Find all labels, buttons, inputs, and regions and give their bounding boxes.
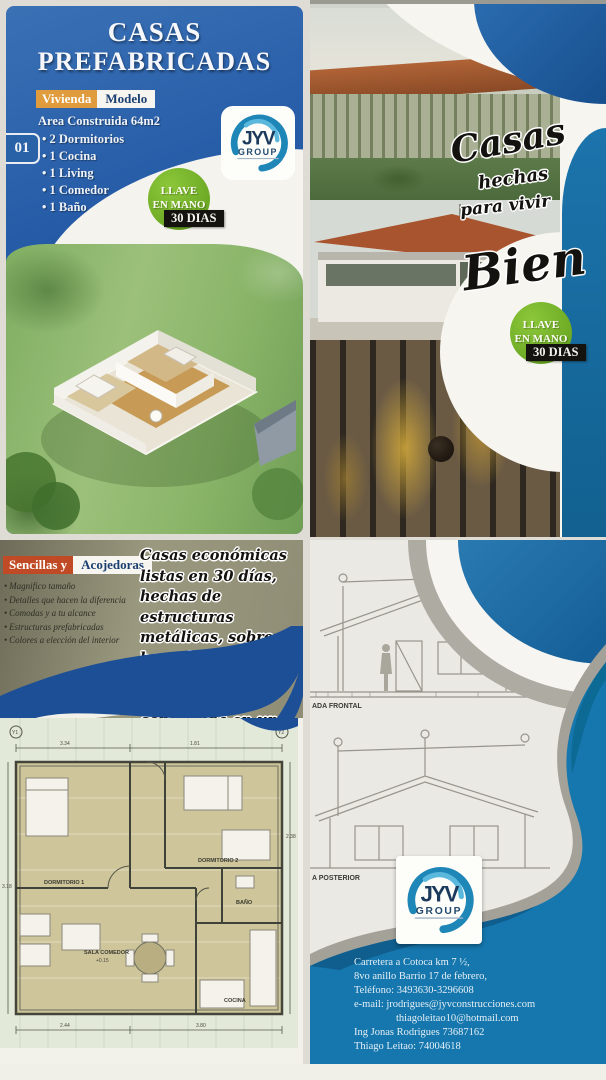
room-label-dorm2: DORMITORIO 2 (198, 858, 238, 864)
room-label-dorm1: DORMITORIO 1 (44, 880, 84, 886)
panel-floorplan: Sencillas y Acojedoras Magnifico tamaño … (0, 540, 303, 1080)
title-line-1: CASAS (6, 18, 303, 48)
feature-item: 1 Living (42, 166, 124, 181)
contact-line-email1: e-mail: jrodrigues@jyvconstrucciones.com (354, 998, 592, 1012)
panel-elevations-contact: ADA FRONTAL A POSTERIOR (310, 540, 606, 1080)
contact-line-person2: Thiago Leitao: 74004618 (354, 1040, 592, 1054)
brochure-scan: CASAS PREFABRICADAS Vivienda Modelo Area… (0, 0, 606, 1080)
llave-en-mano-badge: LLAVE EN MANO 30 DIAS (148, 168, 210, 230)
house-3d-render (6, 244, 303, 534)
llave-line1: LLAVE (148, 185, 210, 199)
contact-line-address2: 8vo anillo Barrio 17 de febrero, (354, 970, 592, 984)
llave-en-mano-badge: LLAVE EN MANO 30 DIAS (510, 302, 572, 364)
dim-left1: 3.18 (2, 884, 12, 890)
dias-bar: 30 DIAS (526, 344, 586, 361)
jyv-logo-swirl-icon: JYV GROUP (221, 106, 295, 180)
jyv-logo-swirl-icon: JYV GROUP (396, 856, 482, 944)
dias-bar: 30 DIAS (164, 210, 224, 227)
dim-bottom2: 3.80 (196, 1023, 206, 1029)
jyv-group-logo: JYV GROUP (221, 106, 295, 180)
feature-list: 2 Dormitorios 1 Cocina 1 Living 1 Comedo… (42, 130, 124, 217)
tag-modelo: Modelo (97, 90, 155, 108)
unit-number-badge: 01 (6, 133, 40, 164)
scan-edge (0, 1064, 606, 1080)
contact-block: Carretera a Cotoca km 7 ½, 8vo anillo Ba… (354, 956, 592, 1054)
dim-top2: 1.81 (190, 741, 200, 747)
feature-item: 1 Cocina (42, 149, 124, 164)
jyv-group-logo: JYV GROUP (396, 856, 482, 944)
room-label-cocina: COCINA (224, 998, 246, 1004)
contact-line-phone: Teléfono: 3493630-3296608 (354, 984, 592, 998)
benefit-item: Detalles que hacen la diferencia (4, 594, 126, 608)
tag-sencillas: Sencillas y (3, 556, 73, 574)
landscape-render (6, 244, 303, 534)
contact-line-address1: Carretera a Cotoca km 7 ½, (354, 956, 592, 970)
logo-group-text: GROUP (416, 906, 462, 917)
title-line-2: PREFABRICADAS (6, 48, 303, 77)
feature-item: 2 Dormitorios (42, 132, 124, 147)
logo-jyv-text: JYV (420, 882, 459, 907)
axis-marker-2: Y2 (278, 730, 284, 736)
logo-group-text: GROUP (238, 147, 278, 157)
model-tag: Vivienda Modelo (36, 90, 155, 108)
benefit-item: Comodas y a tu alcance (4, 607, 126, 621)
llave-line1: LLAVE (510, 319, 572, 333)
room-label-bano: BAÑO (236, 899, 253, 906)
feature-item: 1 Comedor (42, 183, 124, 198)
level-mark: +0.15 (96, 958, 109, 964)
feature-item: 1 Baño (42, 200, 124, 215)
contact-line-email2: thiagoleitao10@hotmail.com (354, 1012, 592, 1026)
axis-marker-1: Y1 (12, 730, 18, 736)
panel-photos: Casas hechas para vivir Bien LLAVE EN MA… (310, 0, 606, 537)
panel-cover: CASAS PREFABRICADAS Vivienda Modelo Area… (6, 6, 303, 534)
contact-line-person1: Ing Jonas Rodrigues 73687162 (354, 1026, 592, 1040)
dim-right1: 2.38 (286, 834, 296, 840)
round-fixture (428, 436, 454, 462)
tag-vivienda: Vivienda (36, 90, 97, 108)
dim-bottom1: 2.44 (60, 1023, 70, 1029)
sencillas-tag: Sencillas y Acojedoras (3, 556, 152, 574)
dim-top1: 3.34 (60, 741, 70, 747)
architectural-floorplan: DORMITORIO 1 DORMITORIO 2 SALA COMEDOR +… (0, 718, 298, 1048)
page-title: CASAS PREFABRICADAS (6, 18, 303, 76)
area-line: Area Construida 64m2 (38, 114, 160, 129)
room-label-sala: SALA COMEDOR (84, 950, 129, 956)
benefit-item: Magnifico tamaño (4, 580, 126, 594)
